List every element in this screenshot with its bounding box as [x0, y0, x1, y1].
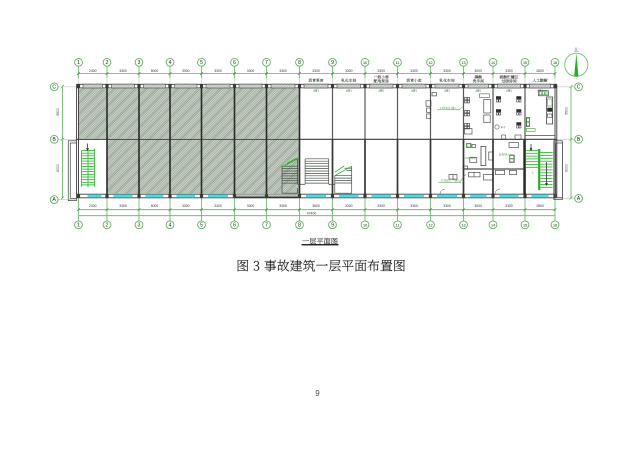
svg-text:3300: 3300: [214, 204, 222, 208]
svg-text:3300: 3300: [345, 204, 353, 208]
svg-text:3300: 3300: [279, 204, 287, 208]
svg-text:2400: 2400: [89, 204, 97, 208]
svg-text:16: 16: [553, 61, 557, 65]
svg-text:5500: 5500: [56, 108, 60, 116]
svg-text:2: 2: [106, 222, 109, 228]
svg-text:13: 13: [461, 223, 465, 227]
svg-text:3300: 3300: [247, 69, 255, 73]
svg-text:C: C: [577, 84, 581, 90]
svg-text:3: 3: [138, 222, 141, 228]
svg-text:12: 12: [428, 61, 432, 65]
svg-text:9: 9: [315, 389, 320, 398]
svg-text:3300: 3300: [443, 204, 451, 208]
svg-text:3300: 3300: [214, 69, 222, 73]
svg-text:3300: 3300: [247, 204, 255, 208]
svg-text:3300: 3300: [119, 204, 127, 208]
svg-text:3300: 3300: [182, 69, 190, 73]
svg-text:4: 4: [169, 60, 172, 66]
svg-text:14: 14: [491, 61, 495, 65]
svg-text:5: 5: [200, 222, 203, 228]
svg-text:12: 12: [428, 223, 432, 227]
svg-text:14: 14: [491, 223, 495, 227]
svg-text:9: 9: [331, 222, 334, 228]
svg-text:3300: 3300: [312, 69, 320, 73]
svg-text:2: 2: [106, 60, 109, 66]
svg-text:16: 16: [553, 223, 557, 227]
svg-text:3300: 3300: [119, 69, 127, 73]
svg-text:3600: 3600: [312, 204, 320, 208]
svg-text:11: 11: [396, 61, 400, 65]
svg-text:3300: 3300: [279, 69, 287, 73]
svg-text:8: 8: [298, 60, 301, 66]
svg-text:3300: 3300: [345, 69, 353, 73]
svg-text:5500: 5500: [565, 107, 569, 115]
svg-text:1: 1: [77, 222, 80, 228]
svg-text:3300: 3300: [377, 69, 385, 73]
svg-text:3300: 3300: [505, 204, 513, 208]
svg-text:10: 10: [363, 223, 367, 227]
svg-text:9: 9: [331, 60, 334, 66]
svg-text:P-7: P-7: [501, 125, 506, 129]
svg-text:3300: 3300: [410, 204, 418, 208]
svg-text:2800: 2800: [536, 69, 544, 73]
svg-text:3300: 3300: [410, 69, 418, 73]
svg-text:15: 15: [523, 61, 527, 65]
svg-text:5000: 5000: [151, 204, 159, 208]
svg-text:6000: 6000: [56, 164, 60, 172]
svg-text:5: 5: [200, 60, 203, 66]
svg-text:3000: 3000: [474, 69, 482, 73]
svg-text:11: 11: [396, 223, 400, 227]
svg-text:2800: 2800: [536, 204, 544, 208]
svg-text:7: 7: [265, 222, 268, 228]
svg-text:3300: 3300: [505, 69, 513, 73]
svg-text:2400: 2400: [89, 69, 97, 73]
svg-text:8: 8: [298, 222, 301, 228]
svg-text:15: 15: [523, 223, 527, 227]
svg-text:13: 13: [461, 61, 465, 65]
svg-text:7: 7: [265, 60, 268, 66]
svg-text:3300: 3300: [377, 204, 385, 208]
svg-text:3300: 3300: [182, 204, 190, 208]
svg-text:3300: 3300: [443, 69, 451, 73]
svg-text:4: 4: [169, 222, 172, 228]
svg-text:47400: 47400: [307, 211, 317, 215]
svg-text:5000: 5000: [151, 69, 159, 73]
svg-text:3: 3: [138, 60, 141, 66]
svg-text:6000: 6000: [565, 164, 569, 172]
svg-text:C: C: [52, 84, 56, 90]
svg-text:6: 6: [233, 60, 236, 66]
svg-text:6: 6: [233, 222, 236, 228]
svg-text:10: 10: [363, 61, 367, 65]
svg-text:3000: 3000: [474, 204, 482, 208]
svg-text:1: 1: [77, 60, 80, 66]
